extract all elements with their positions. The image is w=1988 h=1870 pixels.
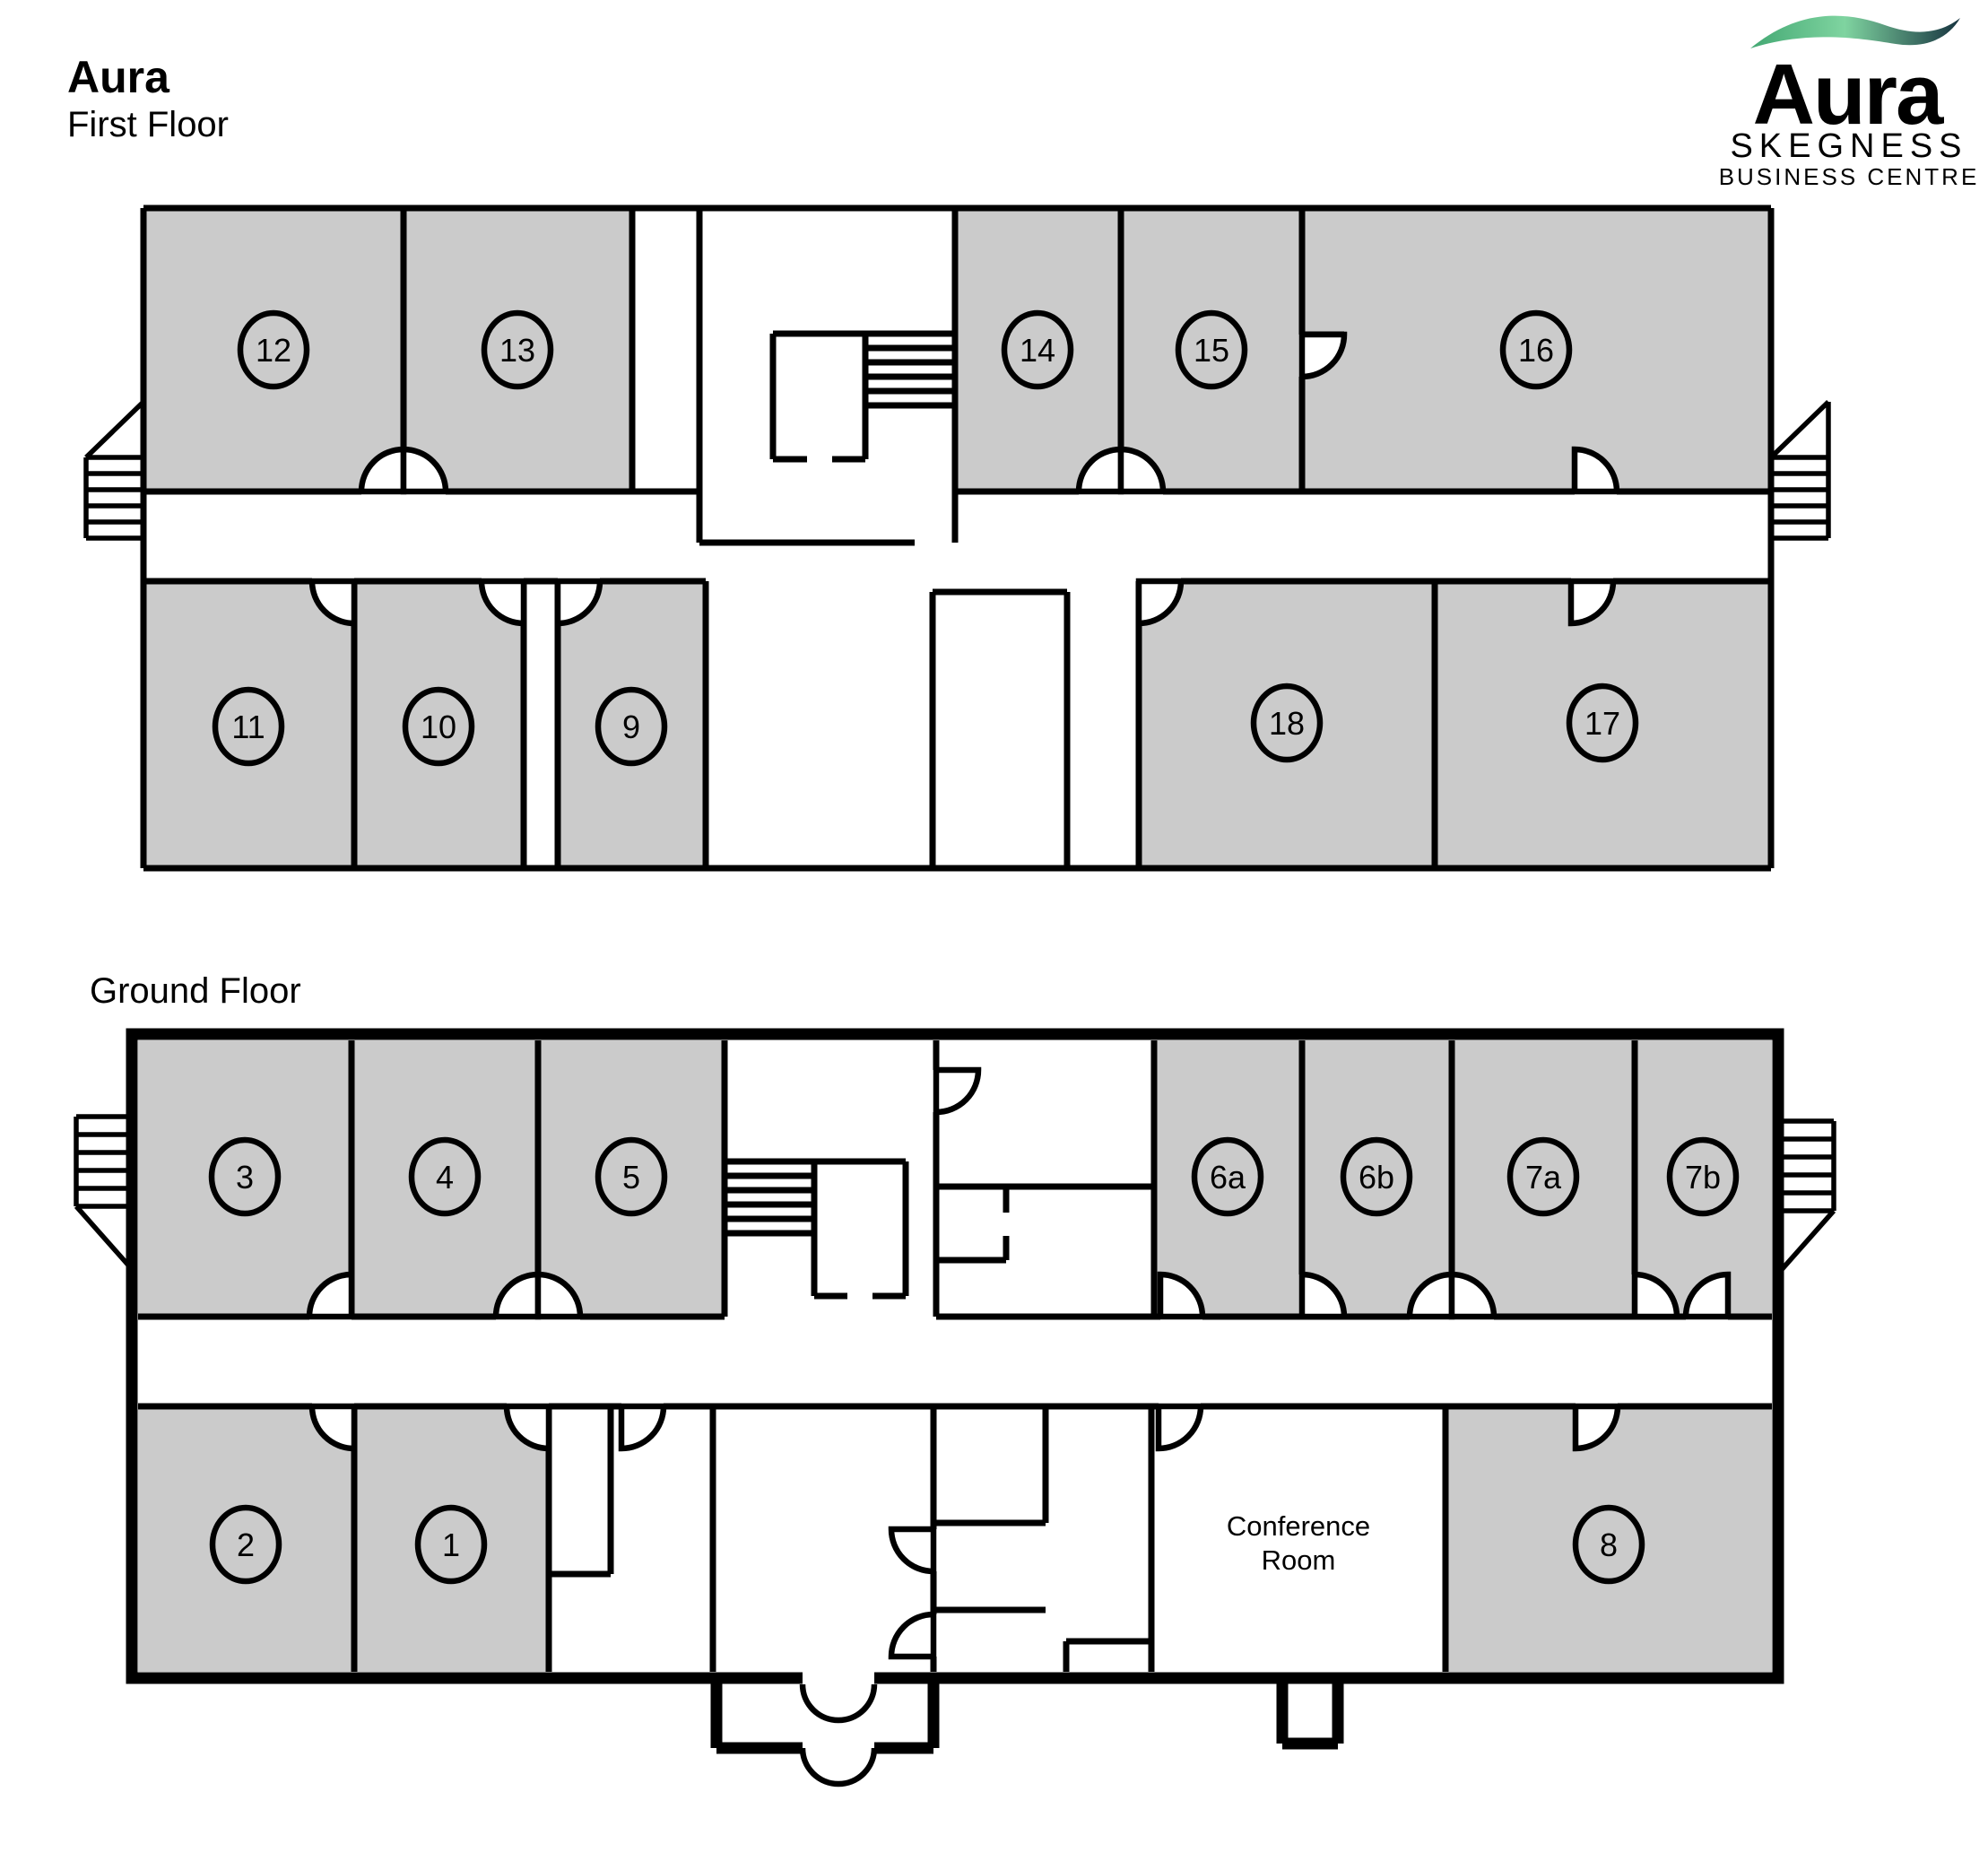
room-10-label: 10: [421, 709, 456, 745]
first-floor-exterior-stairs-left: [86, 402, 143, 538]
room-12-label: 12: [256, 332, 291, 369]
room-17-label: 17: [1584, 705, 1620, 742]
room-7a: 7a: [1452, 1040, 1635, 1317]
room-9: 9: [558, 581, 706, 868]
room-7b-label: 7b: [1685, 1159, 1721, 1196]
room-3: 3: [138, 1040, 352, 1317]
plan-line: [76, 1117, 132, 1269]
door-wc-cubicle-2: [891, 1614, 933, 1657]
plan-line: [1771, 402, 1828, 538]
door-wc-area: [936, 1070, 978, 1112]
room-1-label: 1: [442, 1526, 460, 1563]
floor-plan-canvas: Aura First Floor Aura SKEGNESS BUSINESS …: [0, 0, 1988, 1870]
room-13: 13: [404, 208, 632, 491]
room-15-label: 15: [1194, 332, 1229, 369]
door-wc-cubicle-1: [891, 1529, 933, 1571]
room-11: 11: [143, 581, 354, 868]
door-conference-room: [1159, 1406, 1201, 1448]
conference-room-label-line2: Room: [1262, 1544, 1336, 1576]
room-4: 4: [352, 1040, 538, 1317]
room-6b: 6b: [1302, 1040, 1452, 1317]
room-4-label: 4: [436, 1159, 454, 1196]
floor-plan-page: Aura First Floor Aura SKEGNESS BUSINESS …: [0, 0, 1988, 1870]
logo-location-text: SKEGNESS: [1730, 127, 1967, 165]
room-2-label: 2: [237, 1526, 255, 1563]
room-10: 10: [354, 581, 524, 868]
room-15: 15: [1121, 208, 1302, 491]
ground-floor-plan: 3 4 5 6a 6b: [76, 1034, 1834, 1784]
room-14: 14: [955, 208, 1121, 491]
room-14-label: 14: [1020, 332, 1055, 369]
room-2: 2: [138, 1406, 354, 1672]
room-8: 8: [1445, 1406, 1772, 1672]
room-18: 18: [1139, 581, 1435, 868]
room-9-label: 9: [622, 709, 640, 745]
room-11-label: 11: [231, 709, 265, 745]
door-store-room: [621, 1406, 664, 1448]
room-6a-label: 6a: [1210, 1159, 1246, 1196]
room-5: 5: [538, 1040, 725, 1317]
first-floor-plan: 12 13 14 15 16: [86, 208, 1828, 868]
room-7b: 7b: [1635, 1040, 1772, 1317]
ground-floor-exterior-stairs-right: [1778, 1121, 1834, 1274]
room-16: 16: [1302, 208, 1771, 491]
first-floor-exterior-stairs-right: [1771, 402, 1828, 538]
room-7a-label: 7a: [1525, 1159, 1562, 1196]
conference-room-label-line1: Conference: [1227, 1510, 1370, 1542]
room-13-label: 13: [499, 332, 535, 369]
room-12: 12: [143, 208, 404, 491]
header: Aura First Floor: [67, 52, 229, 144]
aura-logo: Aura SKEGNESS BUSINESS CENTRE: [1719, 16, 1980, 190]
room-1: 1: [354, 1406, 549, 1672]
first-floor-label: First Floor: [67, 105, 229, 144]
room-8-label: 8: [1600, 1526, 1618, 1563]
room-5-label: 5: [622, 1159, 640, 1196]
entrance-outer-opening: [803, 1741, 874, 1755]
conference-room: Conference Room: [1227, 1510, 1370, 1576]
room-18-label: 18: [1269, 705, 1305, 742]
page-title: Aura: [67, 52, 170, 102]
room-17: 17: [1435, 581, 1771, 868]
room-3-label: 3: [236, 1159, 254, 1196]
ground-floor-exterior-stairs-left: [76, 1117, 132, 1269]
ground-floor-label: Ground Floor: [90, 971, 301, 1011]
plan-line: [86, 402, 143, 538]
entrance-inner-opening: [803, 1666, 874, 1695]
logo-swoosh-icon: [1750, 16, 1960, 48]
logo-subtitle-text: BUSINESS CENTRE: [1719, 163, 1980, 190]
ground-floor-rooms: 3 4 5 6a 6b: [138, 1040, 1772, 1672]
plan-line: [1778, 1121, 1834, 1274]
room-6b-label: 6b: [1359, 1159, 1394, 1196]
room-16-label: 16: [1518, 332, 1554, 369]
